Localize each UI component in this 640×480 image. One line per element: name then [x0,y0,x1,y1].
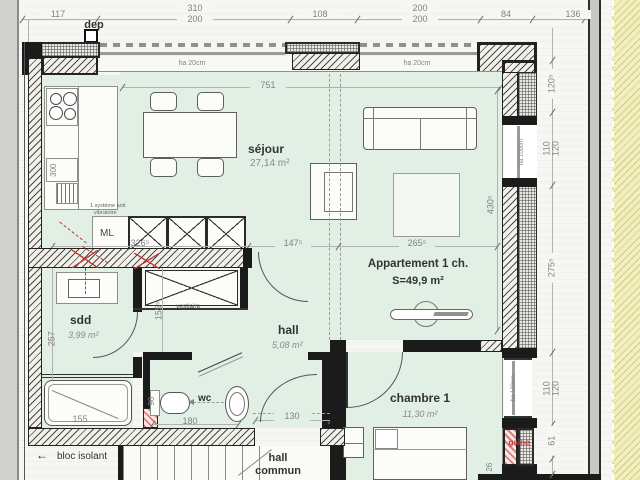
dim-147: 147⁵ [275,239,311,248]
dim-right-110-120-a: 110 120 [543,133,562,163]
window-top-b-glazing [360,52,477,55]
wall-top-inner-face [42,71,502,72]
dim-right-61: 61 [547,426,556,456]
wall-vestiaire-right [240,268,248,310]
sdd-area: 3,99 m² [68,330,99,340]
window-right-bedroom [504,358,532,418]
dep-hatch-block [42,56,98,75]
stove [46,88,78,126]
annotation-red-cross [134,253,160,269]
wall-left [28,58,42,428]
neighbor-parcel-hatch [612,0,640,480]
bed-fold-line [373,449,467,450]
wall-right-stub [502,116,537,125]
chambre-area: 11,30 m² [370,409,470,419]
wall-right-stub [502,418,537,428]
dim-line-430 [497,90,498,330]
dim-155-tub: 155 [62,415,98,424]
dim-top-310: 310 [177,4,213,13]
wall-chambre-top-hatch [480,340,502,352]
dim-180: 180 [172,417,208,426]
sofa-armrest-right [466,107,467,150]
dim-wc-90: 90 [148,391,156,411]
sofa-armrest-left [373,107,374,150]
sdd-label: sdd [70,314,91,327]
bed-pillow [375,429,398,449]
wall-bottom-left [28,428,255,446]
chambre-label: chambre 1 [370,392,470,405]
dim-top-108: 108 [302,10,338,19]
dining-chair [150,92,177,111]
apartment-label: Appartement 1 ch. [348,258,488,271]
wall-sdd-tub-divider [42,374,133,378]
wc-arrowhead [188,399,194,405]
bloc-isolant-arrow-icon: ← [36,448,48,462]
bloc-isolant-label: bloc isolant [57,451,107,462]
ml-label: ML [100,228,114,239]
chambre-door-leaf [346,352,348,408]
wc-washbasin-inner [229,392,245,416]
wall-right-hatch-b [502,182,518,352]
dim-right-110-120-b: 110 120 [543,373,562,403]
dining-table [143,112,237,158]
hall-commun-label-1: hall [252,452,304,464]
paper-left-margin [0,0,17,480]
dim-value: 120 [552,373,561,403]
wc-label: wc [198,393,211,404]
dim-257: 257 [47,325,56,353]
wall-top-pier-hatch [292,53,360,70]
structural-dashed-line [340,74,341,340]
wall-bottom-right-band [478,474,601,480]
toilet-bowl [160,392,190,414]
anti-vibration-note-1: 1 système anti [90,203,125,209]
wall-wc-right [322,352,330,428]
party-wall [588,0,601,480]
dim-top-200c: 200 [402,15,438,24]
wall-wc-top-left [143,352,192,360]
dining-chair [150,158,177,177]
gaine-label: gaine [503,438,535,447]
kitchen-appliance-grill [56,183,78,204]
hall-area: 5,08 m² [272,340,303,350]
dim-top-117: 117 [40,10,76,19]
annotation-red-line-v [85,268,86,294]
wall-sdd-right-bottom [133,357,142,378]
gaine-duct-left [503,428,518,466]
structural-dashed-line [329,74,330,340]
dim-155v: 155⁵ [154,296,163,326]
dim-line-751 [122,87,500,88]
dim-right-26: 26 [486,455,494,479]
dim-top-200a: 200 [177,15,213,24]
floor-plan: 117 310 200 108 200 200 84 136 dep ha 20… [0,0,640,480]
dim-fridge-300: 300 [50,158,58,182]
sejour-label: séjour [248,143,284,156]
dim-right-120: 120⁵ [547,69,556,99]
dim-top-84: 84 [488,10,524,19]
dim-265: 265⁵ [399,239,435,248]
hall-label: hall [278,324,299,337]
window-height-label-b: ha 20cm [393,60,441,67]
dim-430: 430⁵ [486,189,495,221]
wall-right-stub [502,178,537,187]
dep-duct [84,29,98,43]
wall-chambre-top [403,340,480,352]
window-top-a-glazing [100,52,285,55]
hall-commun-label-2: commun [246,465,310,477]
sejour-area: 27,14 m² [250,158,289,169]
dining-chair [197,158,224,177]
burner-icon [64,108,76,120]
vestiaire-label: vestiaire [176,303,200,310]
burner-icon [63,92,77,106]
dim-top-200b: 200 [402,4,438,13]
rug [393,173,460,237]
window-top-a [100,43,285,47]
dim-751: 751 [250,81,286,90]
dim-value: 120 [552,133,561,163]
window-height-label-a: ha 20cm [168,60,216,67]
wall-right-stub [502,348,537,358]
dining-chair [197,92,224,111]
wall-pier [243,248,252,268]
facade-line-left [24,42,25,480]
kitchen-counter-divider [78,86,79,210]
window-top-b [360,43,477,47]
corridor-floor [133,310,248,352]
anti-vibration-note-2: vibratoire [94,210,117,216]
sofa-cushion-divider [420,118,421,150]
dim-top-136: 136 [555,10,591,19]
radiator-stripe [433,312,468,316]
gaine-duct-right [518,428,534,466]
nightstand-divider [343,443,364,444]
wall-right-dots-b [518,182,537,352]
paper-fold-line [17,0,19,480]
wall-sdd-right-top [133,268,142,312]
window-right-bedroom-label: ha 120cm [511,366,517,410]
burner-icon [49,106,63,120]
annotation-red-cross [72,250,98,268]
window-right-living-label: ha 100cm [519,130,525,174]
burner-icon [50,93,62,105]
wall-bottom-right [320,428,345,446]
dim-right-275: 275⁵ [547,253,556,283]
wall-chambre-left [330,340,346,480]
apartment-surface: S=49,9 m² [348,275,488,287]
sdd-basin [68,279,100,298]
